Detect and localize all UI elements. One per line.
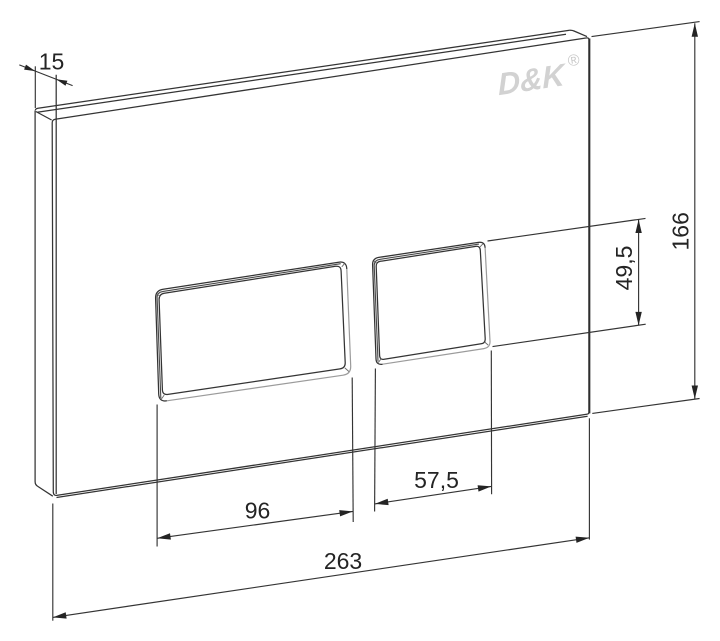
svg-text:166: 166 <box>668 212 694 250</box>
svg-text:15: 15 <box>39 49 65 75</box>
svg-text:263: 263 <box>324 548 362 574</box>
svg-text:49,5: 49,5 <box>611 246 637 291</box>
svg-text:57,5: 57,5 <box>414 467 459 493</box>
svg-text:96: 96 <box>245 497 271 523</box>
